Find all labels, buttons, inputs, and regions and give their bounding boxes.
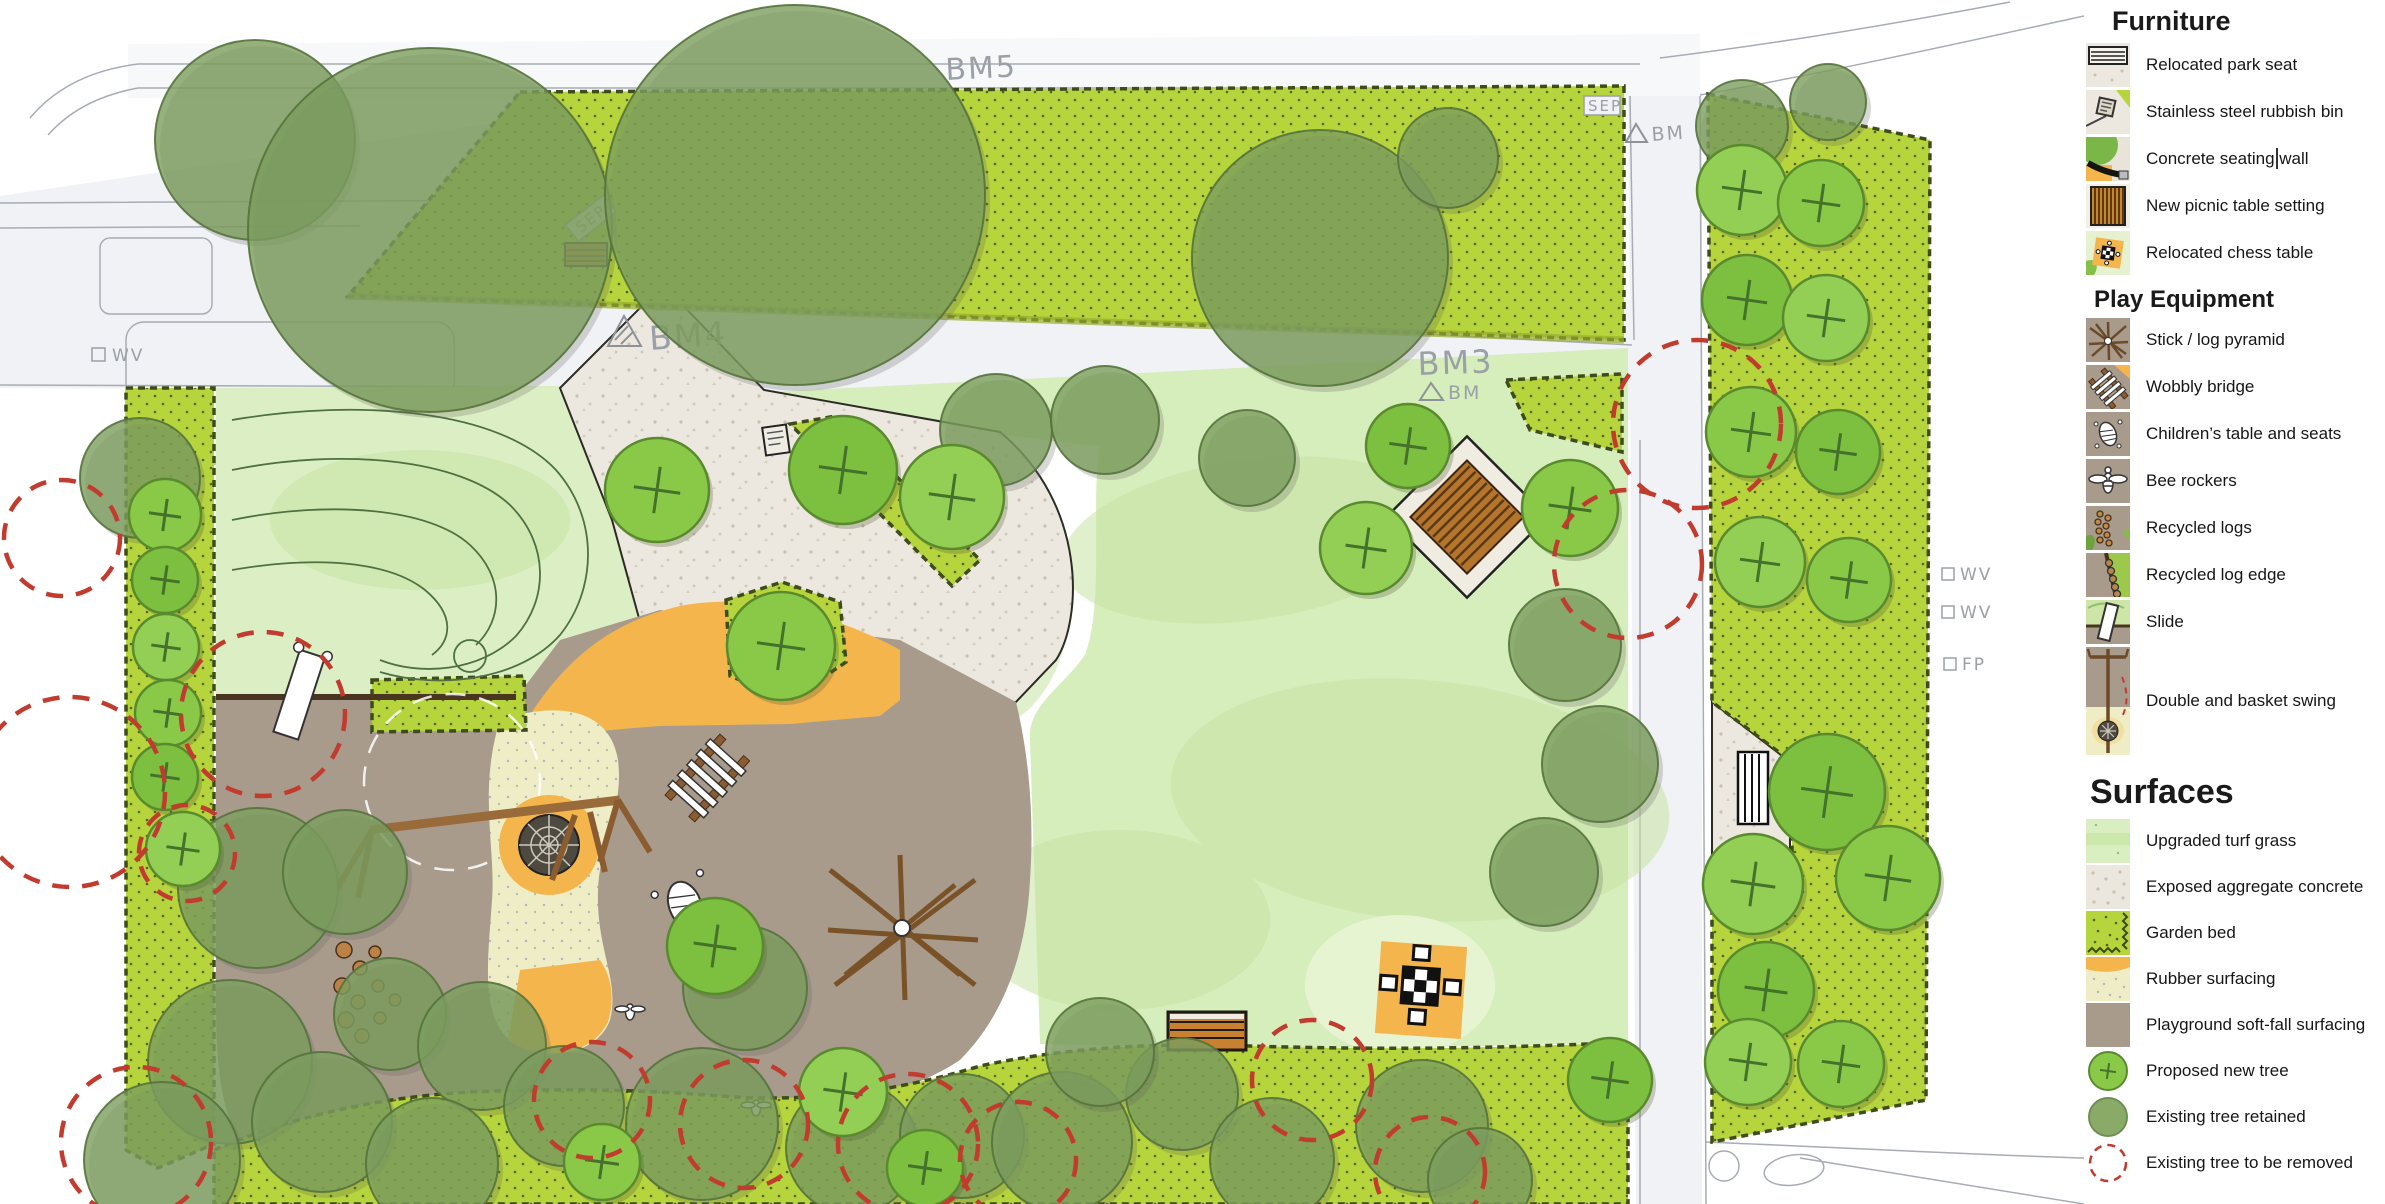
svg-text:WV: WV xyxy=(1960,565,1992,585)
rubber-surfacing-swatch xyxy=(2086,957,2130,1001)
childrens-table-swatch xyxy=(2086,412,2130,456)
existing-tree xyxy=(283,810,407,934)
bm5-label: BM5 xyxy=(945,49,1018,88)
legend-item-recycled-logs: Recycled logs xyxy=(2084,504,2385,551)
existing-tree xyxy=(1490,818,1598,926)
legend-item-stick-pyramid: Stick / log pyramid xyxy=(2084,316,2385,363)
legend-item-existing-tree: Existing tree retained xyxy=(2084,1094,2385,1140)
legend-label: Rubber surfacing xyxy=(2146,969,2275,989)
park-seat-alcove xyxy=(1738,752,1768,824)
legend-panel: Furniture Relocated park seat Stainless … xyxy=(2084,0,2385,1204)
legend-item-bee-rockers: Bee rockers xyxy=(2084,457,2385,504)
rubbish-bin-swatch xyxy=(2086,90,2130,134)
slide-swatch xyxy=(2086,600,2130,644)
legend-label: Double and basket swing xyxy=(2146,691,2336,711)
legend-item-softfall: Playground soft-fall surfacing xyxy=(2084,1002,2385,1048)
legend-item-rubbish-bin: Stainless steel rubbish bin xyxy=(2084,88,2385,135)
soft-fall-swatch xyxy=(2086,1003,2130,1047)
existing-tree xyxy=(626,1048,778,1200)
play-equipment-section-title: Play Equipment xyxy=(2094,286,2385,314)
existing-tree xyxy=(1051,366,1159,474)
surfaces-section-title: Surfaces xyxy=(2090,773,2385,812)
slide-bed xyxy=(372,676,526,732)
seating-wall-swatch xyxy=(2086,137,2130,181)
existing-tree xyxy=(248,48,612,412)
bm-top-label: BM xyxy=(1651,122,1686,146)
legend-item-proposed-tree: Proposed new tree xyxy=(2084,1048,2385,1094)
removed-tree-swatch xyxy=(2086,1141,2130,1185)
legend-item-slide: Slide xyxy=(2084,598,2385,645)
legend-item-chess-table: Relocated chess table xyxy=(2084,229,2385,276)
legend-label: Exposed aggregate concrete xyxy=(2146,877,2363,897)
legend-item-picnic-table: New picnic table setting xyxy=(2084,182,2385,229)
bm3-bm-label: BM xyxy=(1448,382,1481,404)
existing-tree xyxy=(1790,64,1866,140)
svg-text:WV: WV xyxy=(112,346,144,366)
legend-label: Stainless steel rubbish bin xyxy=(2146,102,2344,122)
aggregate-concrete-swatch xyxy=(2086,865,2130,909)
legend-item-turf: Upgraded turf grass xyxy=(2084,818,2385,864)
legend-label: Relocated chess table xyxy=(2146,243,2313,263)
legend-label: New picnic table setting xyxy=(2146,196,2325,216)
legend-label[interactable]: Concrete seating wall xyxy=(2146,149,2309,169)
legend-label: Children’s table and seats xyxy=(2146,424,2341,444)
existing-tree xyxy=(1046,998,1154,1106)
legend-item-swing: Double and basket swing xyxy=(2084,645,2385,757)
legend-item-rubber: Rubber surfacing xyxy=(2084,956,2385,1002)
existing-tree xyxy=(1542,706,1658,822)
legend-item-park-seat: Relocated park seat xyxy=(2084,41,2385,88)
legend-item-seating-wall: Concrete seating wall xyxy=(2084,135,2385,182)
legend-label: Slide xyxy=(2146,612,2184,632)
legend-label: Playground soft-fall surfacing xyxy=(2146,1015,2365,1035)
recycled-log-edge-swatch xyxy=(2086,553,2130,597)
legend-label: Recycled log edge xyxy=(2146,565,2286,585)
park-plan-screenshot: BM5 BM4 BM3 BM BM SEP SEP WV WV WV F xyxy=(0,0,2385,1204)
stick-log-pyramid-swatch xyxy=(2086,318,2130,362)
rubbish-bin xyxy=(762,424,790,455)
legend-label: Bee rockers xyxy=(2146,471,2237,491)
relocated-park-seat-swatch xyxy=(2086,43,2130,87)
existing-tree xyxy=(1398,108,1498,208)
legend-label: Existing tree to be removed xyxy=(2146,1153,2353,1173)
legend-item-childrens-table: Children’s table and seats xyxy=(2084,410,2385,457)
legend-item-garden-bed: Garden bed xyxy=(2084,910,2385,956)
chess-table-swatch xyxy=(2086,231,2130,275)
svg-text:WV: WV xyxy=(1960,603,1992,623)
picnic-table-swatch xyxy=(2086,184,2130,228)
wobbly-bridge-swatch xyxy=(2086,365,2130,409)
svg-text:SEP: SEP xyxy=(1588,97,1622,115)
proposed-tree-swatch xyxy=(2086,1049,2130,1093)
turf-grass-swatch xyxy=(2086,819,2130,863)
bm3-label: BM3 xyxy=(1417,342,1494,383)
furniture-section-title: Furniture xyxy=(2112,6,2385,37)
legend-label: Proposed new tree xyxy=(2146,1061,2289,1081)
legend-label: Existing tree retained xyxy=(2146,1107,2306,1127)
legend-label: Stick / log pyramid xyxy=(2146,330,2285,350)
legend-item-log-edge: Recycled log edge xyxy=(2084,551,2385,598)
garden-bed-swatch xyxy=(2086,911,2130,955)
existing-tree xyxy=(605,5,985,385)
bee-rockers-swatch xyxy=(2086,459,2130,503)
chess-table xyxy=(1375,941,1467,1039)
sep-box-top-right: SEP xyxy=(1584,96,1622,115)
legend-item-wobbly-bridge: Wobbly bridge xyxy=(2084,363,2385,410)
legend-label: Garden bed xyxy=(2146,923,2236,943)
legend-label: Wobbly bridge xyxy=(2146,377,2254,397)
recycled-logs-swatch xyxy=(2086,506,2130,550)
site-plan-canvas[interactable]: BM5 BM4 BM3 BM BM SEP SEP WV WV WV F xyxy=(0,0,2084,1204)
legend-item-removed-tree: Existing tree to be removed xyxy=(2084,1140,2385,1186)
legend-item-aggregate: Exposed aggregate concrete xyxy=(2084,864,2385,910)
legend-label: Relocated park seat xyxy=(2146,55,2297,75)
legend-label: Recycled logs xyxy=(2146,518,2252,538)
svg-text:FP: FP xyxy=(1962,655,1986,675)
legend-label: Upgraded turf grass xyxy=(2146,831,2296,851)
double-basket-swing-swatch xyxy=(2086,647,2130,755)
text-cursor xyxy=(2276,148,2278,169)
existing-tree-swatch xyxy=(2086,1095,2130,1139)
existing-tree xyxy=(1199,410,1295,506)
